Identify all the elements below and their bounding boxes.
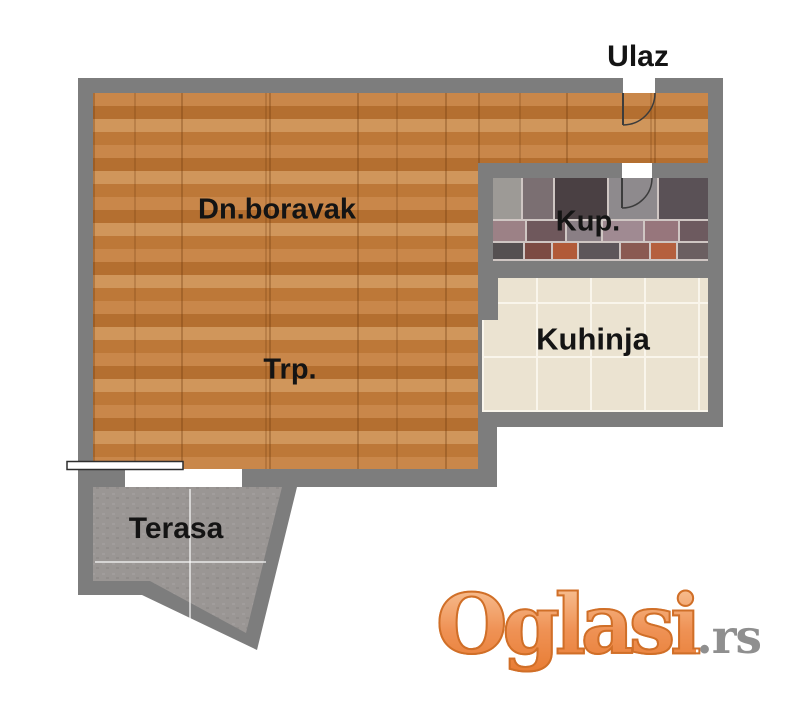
bathroom-tile bbox=[659, 178, 708, 219]
bathroom-tile bbox=[645, 221, 678, 241]
terrace-label: Terasa bbox=[129, 514, 224, 544]
living-room-label: Dn.boravak bbox=[198, 196, 356, 225]
bathroom-tile bbox=[553, 243, 577, 259]
wall-right bbox=[708, 93, 723, 427]
bathroom-tile bbox=[651, 243, 676, 259]
bathroom-tile bbox=[621, 243, 649, 259]
living-room-floor bbox=[93, 93, 478, 469]
terrace-door-opening bbox=[125, 469, 242, 487]
watermark-brand-text: Oglasi bbox=[436, 577, 696, 673]
bathroom-tile bbox=[678, 243, 708, 259]
kitchen-open-edge-line bbox=[478, 320, 482, 412]
wall-kitchen-bottom bbox=[478, 412, 723, 427]
entrance-door-opening bbox=[623, 78, 655, 93]
entrance-label: Ulaz bbox=[607, 42, 669, 72]
wall-kitchen-stub bbox=[478, 278, 498, 320]
bathroom-tile bbox=[493, 178, 521, 219]
bathroom-tile bbox=[493, 243, 523, 259]
bathroom-label: Kup. bbox=[556, 208, 620, 237]
dining-label: Trp. bbox=[263, 356, 316, 385]
bathroom-tile bbox=[680, 221, 708, 241]
bathroom-tile-row bbox=[493, 243, 708, 259]
wall-left bbox=[78, 93, 93, 487]
wall-stub-right-of-living bbox=[478, 427, 497, 469]
floor-plan: Ulaz Dn.boravak Kup. Kuhinja Trp. Terasa… bbox=[0, 0, 800, 720]
bathroom-door-opening bbox=[622, 163, 652, 178]
watermark-suffix-text: .rs bbox=[696, 610, 761, 665]
terrace-slab bbox=[93, 487, 282, 633]
bathroom-tile bbox=[579, 243, 619, 259]
bathroom-tile bbox=[493, 221, 525, 241]
watermark: Oglasi.rs bbox=[436, 584, 761, 666]
kitchen-label: Kuhinja bbox=[536, 324, 650, 355]
wall-bathroom-top bbox=[478, 163, 723, 178]
wall-bathroom-bottom bbox=[478, 261, 723, 278]
entry-hall-floor bbox=[478, 93, 708, 163]
bathroom-tile bbox=[525, 243, 551, 259]
bathroom-tile bbox=[523, 178, 553, 219]
